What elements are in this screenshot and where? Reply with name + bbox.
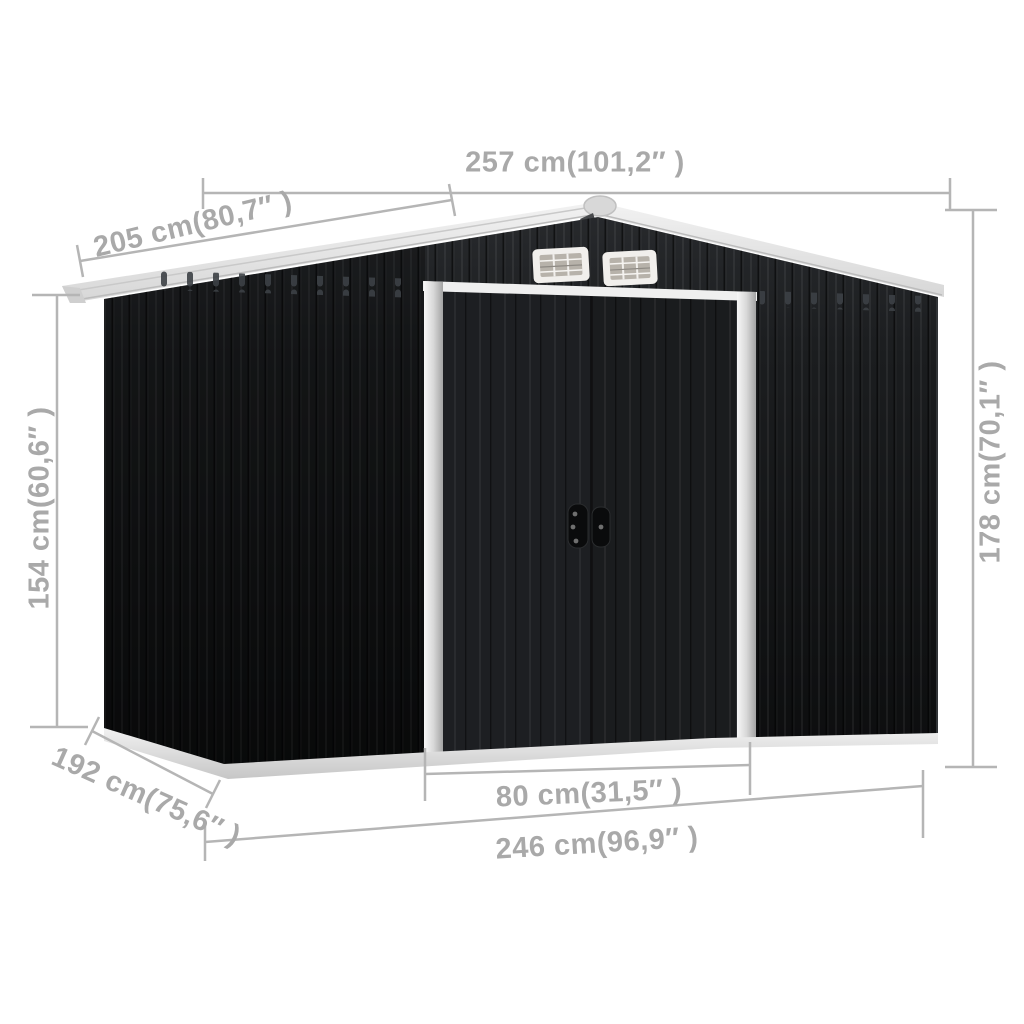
dim-roof-width-line xyxy=(203,178,950,209)
door-handle-left xyxy=(568,504,588,548)
louver-vent-right xyxy=(602,250,658,287)
product-dimension-diagram: 257 cm(101,2″ ) 205 cm(80,7″ ) 154 cm(60… xyxy=(0,0,1024,1024)
door-track-rail-left xyxy=(424,281,443,759)
dim-roof-width-label: 257 cm(101,2″ ) xyxy=(465,147,685,180)
dim-total-height-label: 178 cm(70,1″ ) xyxy=(975,360,1008,563)
sliding-doors xyxy=(423,281,757,764)
dim-wall-height-label: 154 cm(60,6″ ) xyxy=(24,406,57,609)
wall-left-shade xyxy=(104,246,425,769)
louver-vent-left xyxy=(532,247,590,284)
door-handle-right xyxy=(592,507,610,547)
roof-peak-cap xyxy=(584,196,616,216)
door-track-rail-right xyxy=(737,292,756,747)
shed xyxy=(60,190,980,790)
